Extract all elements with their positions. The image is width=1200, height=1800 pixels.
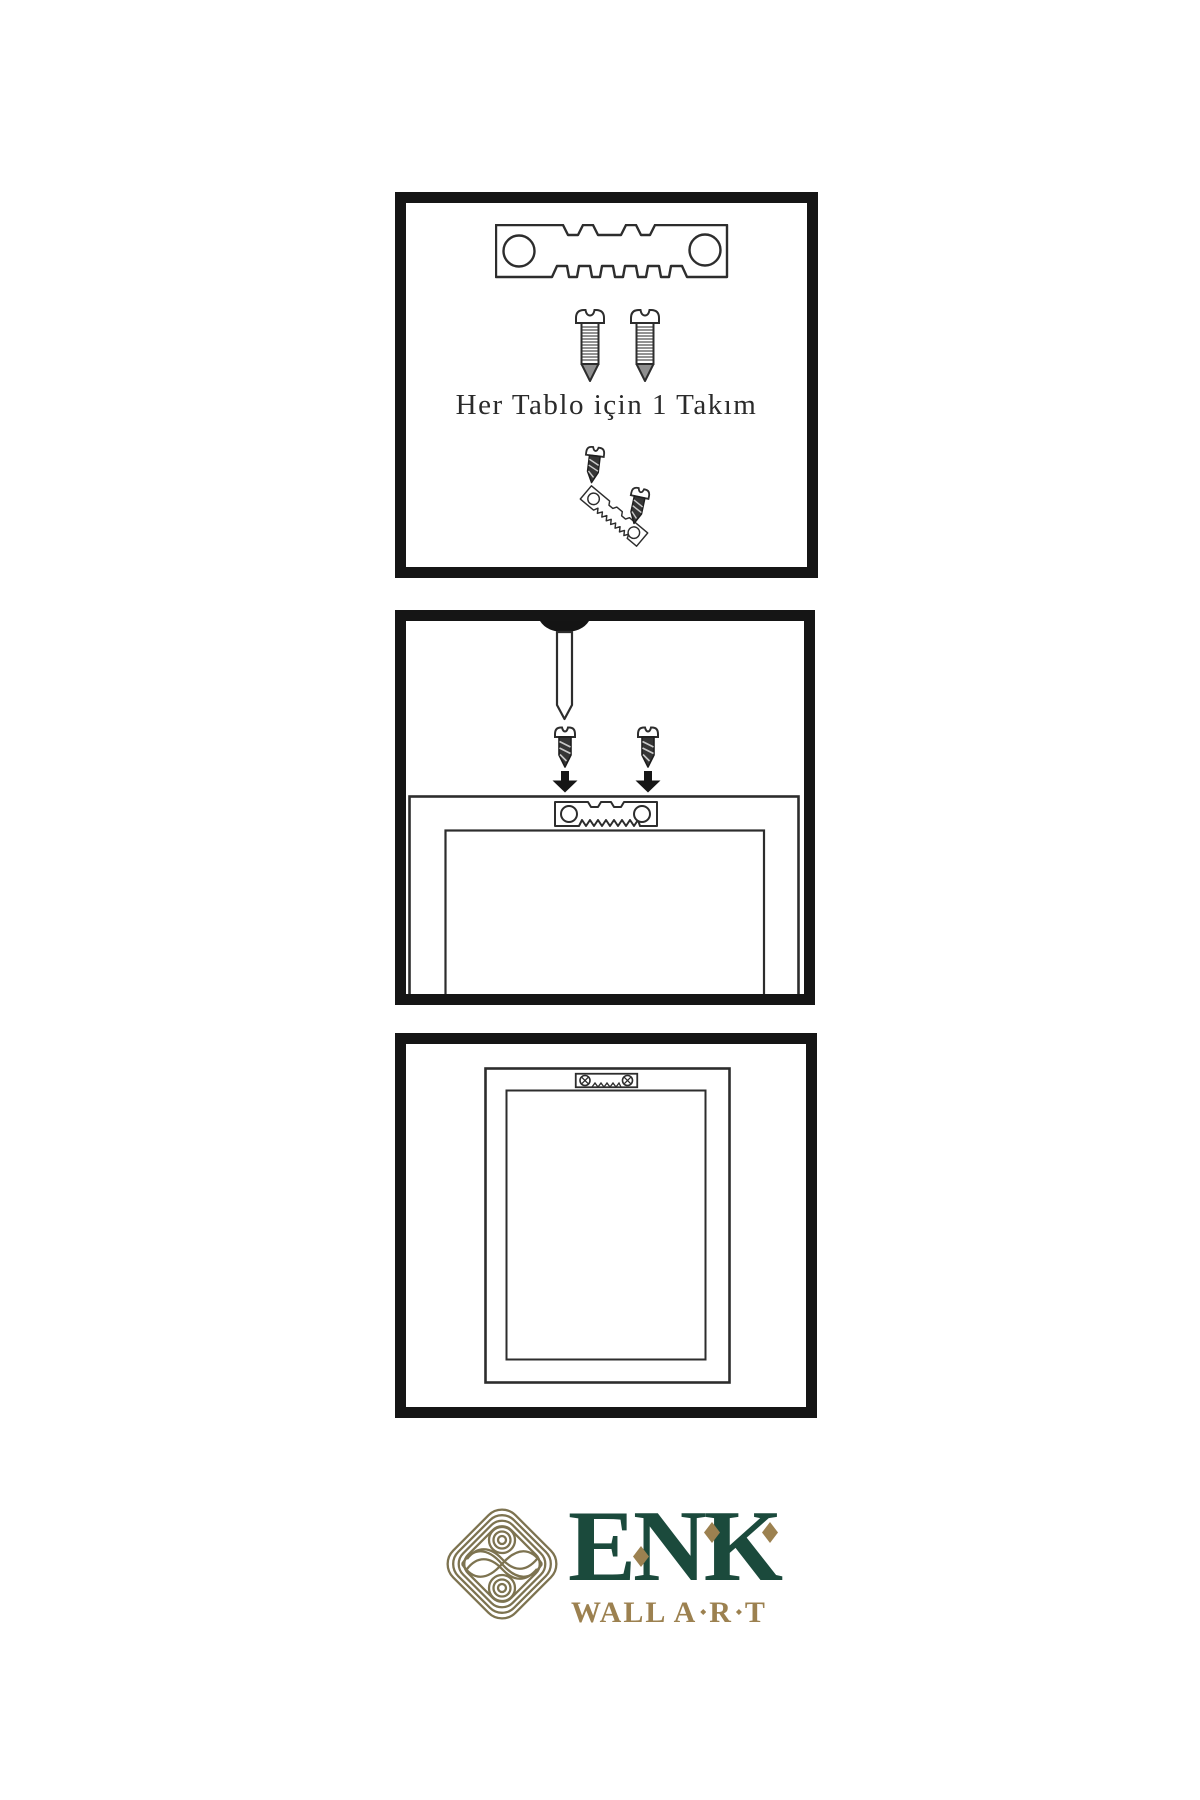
frame-back-icon [410, 797, 799, 995]
diamond-dot-icon [700, 1609, 706, 1615]
step3-panel [395, 1033, 817, 1418]
down-arrow-icon [553, 771, 578, 793]
page: { "panels": { "step1": { "caption": "Her… [0, 0, 1200, 1800]
step2-panel [395, 610, 815, 1005]
knot-emblem-icon [440, 1502, 564, 1626]
sawtooth-hanger-icon [495, 224, 729, 279]
tagline-word: WALL [571, 1596, 666, 1629]
wall-nail-icon [540, 621, 589, 719]
mounting-screw-icon [638, 728, 658, 768]
hung-frame-diagram [406, 1044, 806, 1407]
brand-tagline: WALL ART [571, 1596, 767, 1630]
step1-caption: Her Tablo için 1 Takım [406, 389, 807, 422]
mounting-screw-icon [572, 307, 608, 383]
step1-panel: Her Tablo için 1 Takım [395, 192, 818, 578]
installation-diagram [406, 621, 804, 994]
sawtooth-hanger-icon [576, 1074, 638, 1088]
brand-logo: ENK WALL ART [440, 1496, 802, 1646]
frame-back-icon [486, 1069, 730, 1383]
screw-into-hanger-icon [562, 441, 702, 561]
diamond-dot-icon [736, 1609, 742, 1615]
brand-name: ENK [568, 1496, 780, 1598]
down-arrow-icon [636, 771, 661, 793]
tagline-art: ART [674, 1596, 767, 1629]
mounting-screw-icon [555, 728, 575, 768]
mounting-screw-icon [627, 307, 663, 383]
